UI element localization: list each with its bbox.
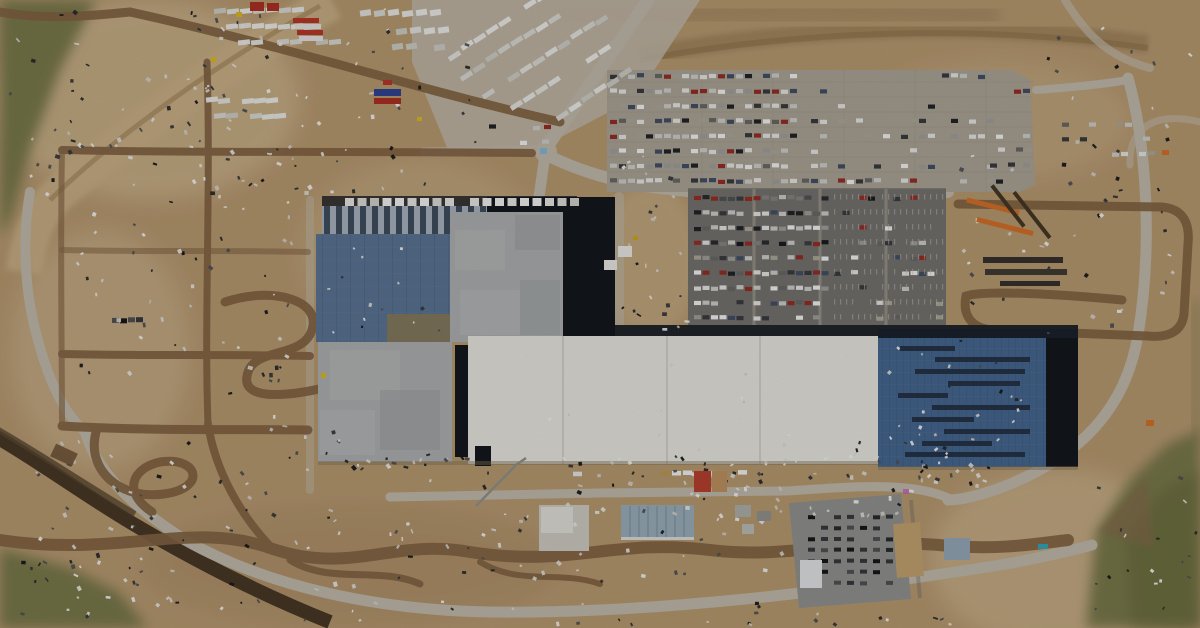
photo-grain bbox=[0, 0, 1200, 628]
satellite-image bbox=[0, 0, 1200, 628]
aerial-photo-canvas bbox=[0, 0, 1200, 628]
